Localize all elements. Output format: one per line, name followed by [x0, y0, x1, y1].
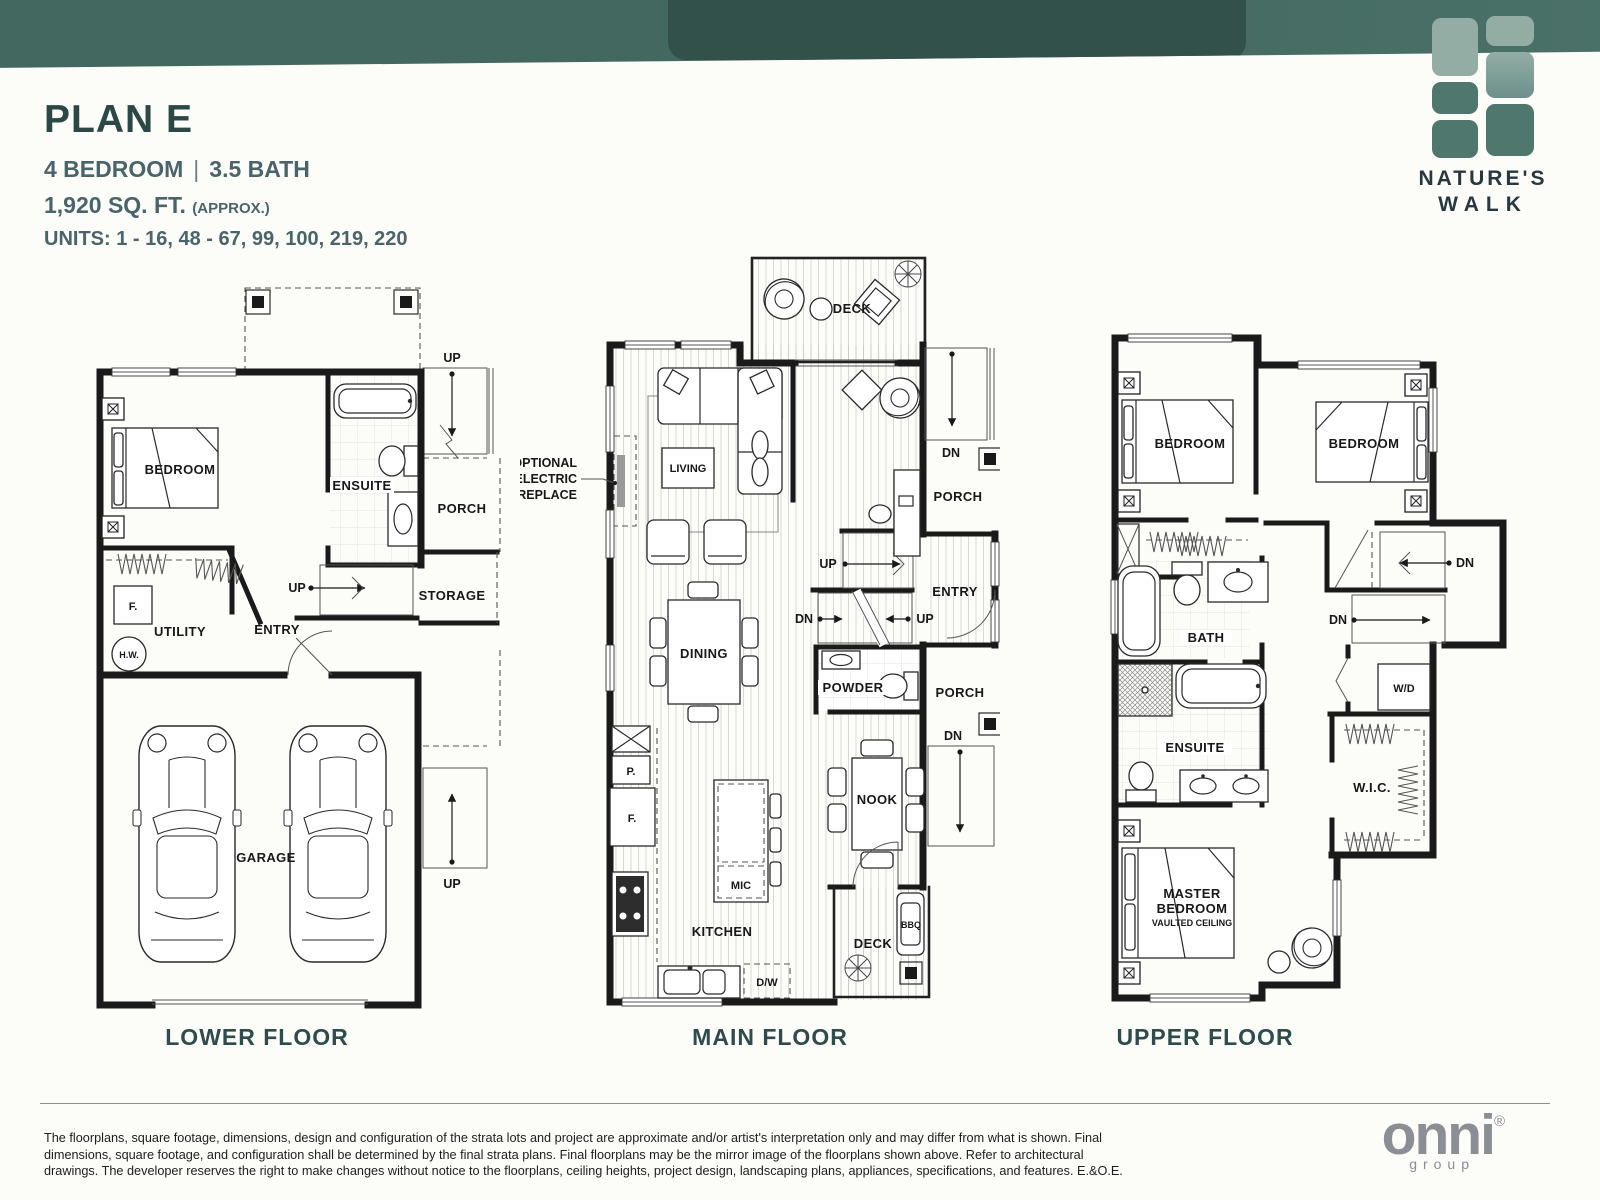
stairs-down-exterior [925, 348, 994, 440]
pantry-label: P. [627, 766, 636, 778]
room-label-entry: ENTRY [932, 584, 978, 599]
bbq-label: BBQ [901, 920, 921, 930]
stair-label: DN [944, 729, 962, 743]
stair-label: UP [288, 581, 305, 595]
toilet-icon [1172, 562, 1202, 605]
room-label-dining: DINING [680, 646, 728, 661]
closet-hangers-icon [1346, 724, 1394, 744]
hot-water-label: H.W. [119, 650, 139, 660]
caption-main-floor: MAIN FLOOR [620, 1024, 920, 1051]
floorplan-sheet: NATURE'S WALK PLAN E 4 BEDROOM|3.5 BATH … [0, 0, 1600, 1200]
area-line: 1,920 SQ. FT. (APPROX.) [44, 192, 408, 219]
kitchen-sink-icon [658, 966, 740, 999]
fireplace-note-line: ELECTRIC [520, 472, 577, 486]
title-block: PLAN E 4 BEDROOM|3.5 BATH 1,920 SQ. FT. … [44, 98, 408, 251]
washer-dryer-label: W/D [1393, 683, 1414, 695]
deck-table-icon [810, 298, 832, 320]
logo-square-icon [1486, 52, 1534, 98]
stairs-up-exterior [423, 368, 493, 458]
room-label-bath: BATH [1188, 630, 1225, 645]
nightstand-icon [1118, 820, 1140, 842]
bedroom-count: 4 BEDROOM [44, 156, 183, 182]
stair-label: DN [1456, 556, 1474, 570]
room-label-porch-lower: PORCH [936, 685, 985, 700]
nightstand-icon [102, 516, 124, 538]
stair-label: DN [1329, 613, 1347, 627]
room-label-bedroom: BEDROOM [145, 462, 216, 477]
units-line: UNITS: 1 - 16, 48 - 67, 99, 100, 219, 22… [44, 228, 408, 251]
natures-walk-logo: NATURE'S WALK [1393, 14, 1573, 229]
nightstand-icon [1118, 490, 1140, 512]
door-swing-icon [288, 631, 332, 675]
stair-label: UP [916, 612, 933, 626]
vent-icon [612, 726, 650, 752]
double-vanity-icon [1180, 770, 1268, 802]
plant-icon [845, 955, 871, 981]
dishwasher-label: D/W [756, 977, 778, 989]
room-label-nook: NOOK [857, 792, 898, 807]
room-label-wic: W.I.C. [1353, 780, 1391, 795]
nightstand-icon [102, 398, 124, 420]
side-table-icon [1268, 951, 1290, 973]
fireplace-note-line: FIREPLACE [520, 488, 577, 502]
onni-sub-label: group [1280, 1156, 1475, 1172]
stair-label: UP [819, 557, 836, 571]
bedroom-chair-icon [1284, 920, 1340, 976]
bathtub-icon [1176, 664, 1266, 708]
bath-count: 3.5 BATH [209, 156, 310, 182]
spec-line: 4 BEDROOM|3.5 BATH [44, 156, 408, 183]
main-floor-plan: DECK DN [520, 250, 1000, 1016]
room-label-ensuite: ENSUITE [332, 478, 391, 493]
toilet-icon [379, 446, 418, 476]
logo-line1: NATURE'S [1393, 166, 1573, 192]
stair-label: UP [443, 351, 460, 365]
lower-floor-plan: UP PORCH STORAGE BEDROOM [80, 272, 510, 1020]
toilet-icon [1126, 762, 1156, 802]
porch-post-icon [979, 448, 1000, 470]
room-label-master: MASTER [1163, 886, 1221, 901]
room-label-bedroom: BEDROOM [1329, 436, 1400, 451]
logo-wordmark: NATURE'S WALK [1393, 166, 1573, 218]
plant-icon [895, 261, 921, 287]
stair-label: DN [942, 446, 960, 460]
disclaimer-text: The floorplans, square footage, dimensio… [44, 1130, 1124, 1180]
stair-label: DN [795, 612, 813, 626]
page-title: PLAN E [44, 98, 408, 142]
room-label-ensuite: ENSUITE [1165, 740, 1224, 755]
closet-hangers-icon [118, 554, 166, 574]
room-label-bedroom: BEDROOM [1155, 436, 1226, 451]
stair-label: UP [443, 877, 460, 891]
sink-icon [822, 651, 860, 669]
fireplace-note-line: OPTIONAL [520, 456, 577, 470]
logo-square-icon [1432, 18, 1478, 76]
shower-icon [1118, 664, 1172, 716]
area-note: (APPROX.) [192, 200, 270, 217]
logo-square-icon [1486, 16, 1534, 46]
room-label-entry: ENTRY [254, 622, 300, 637]
bathtub-icon [334, 384, 416, 418]
logo-square-icon [1432, 82, 1478, 114]
sink-icon [388, 492, 418, 546]
room-label-porch: PORCH [438, 501, 487, 516]
garage-door-icon [152, 1000, 368, 1004]
door-swing-icon [1335, 530, 1368, 588]
sink-icon [1208, 562, 1268, 602]
closet-hangers-icon [1346, 832, 1394, 852]
room-label-utility: UTILITY [154, 624, 206, 639]
room-label-living: LIVING [670, 463, 707, 475]
room-label-powder: POWDER [823, 680, 884, 695]
registered-mark: ® [1494, 1113, 1505, 1130]
caption-lower-floor: LOWER FLOOR [107, 1024, 407, 1051]
bathtub-icon [1118, 566, 1160, 656]
nightstand-icon [1405, 374, 1427, 396]
room-label-porch-upper: PORCH [934, 489, 983, 504]
caption-upper-floor: UPPER FLOOR [1055, 1024, 1355, 1051]
banner-accent-block [668, 0, 1246, 60]
top-banner [0, 0, 1600, 70]
room-label-deck: DECK [833, 301, 872, 316]
logo-square-icon [1432, 120, 1478, 158]
closet-hangers-icon [1398, 766, 1418, 814]
fridge-label: F. [628, 813, 637, 825]
room-label-deck-rear: DECK [854, 936, 893, 951]
area-value: 1,920 SQ. FT. [44, 192, 186, 218]
microwave-label: MIC [731, 880, 751, 892]
stairs-down-upper [1380, 532, 1452, 588]
car-icon [133, 726, 241, 962]
porch-post-icon [246, 290, 418, 314]
nightstand-icon [1405, 490, 1427, 512]
onni-group-logo: onni® group [1280, 1106, 1505, 1172]
porch-post-icon [979, 713, 1000, 735]
range-icon [612, 872, 648, 936]
stairs-up-garage [423, 650, 500, 868]
nightstand-icon [1118, 372, 1140, 394]
closet-hangers-icon [1150, 532, 1198, 552]
room-label-master: BEDROOM [1157, 901, 1228, 916]
room-label-master-note: VAULTED CEILING [1152, 918, 1232, 928]
logo-line2: WALK [1393, 192, 1573, 218]
upper-floor-plan: BEDROOM BEDROOM [1080, 318, 1508, 1014]
stairs-down-exterior [928, 746, 994, 846]
nightstand-icon [1118, 962, 1140, 984]
room-label-kitchen: KITCHEN [692, 924, 753, 939]
footer-divider [40, 1103, 1550, 1104]
logo-square-icon [1486, 104, 1534, 156]
stairs-down-lower [1351, 595, 1445, 643]
stairs-up-interior [308, 565, 413, 615]
furnace-label: F. [129, 601, 138, 613]
room-label-storage: STORAGE [419, 588, 486, 603]
car-icon [284, 726, 392, 962]
room-label-garage: GARAGE [236, 850, 295, 865]
spec-separator: | [183, 156, 209, 182]
